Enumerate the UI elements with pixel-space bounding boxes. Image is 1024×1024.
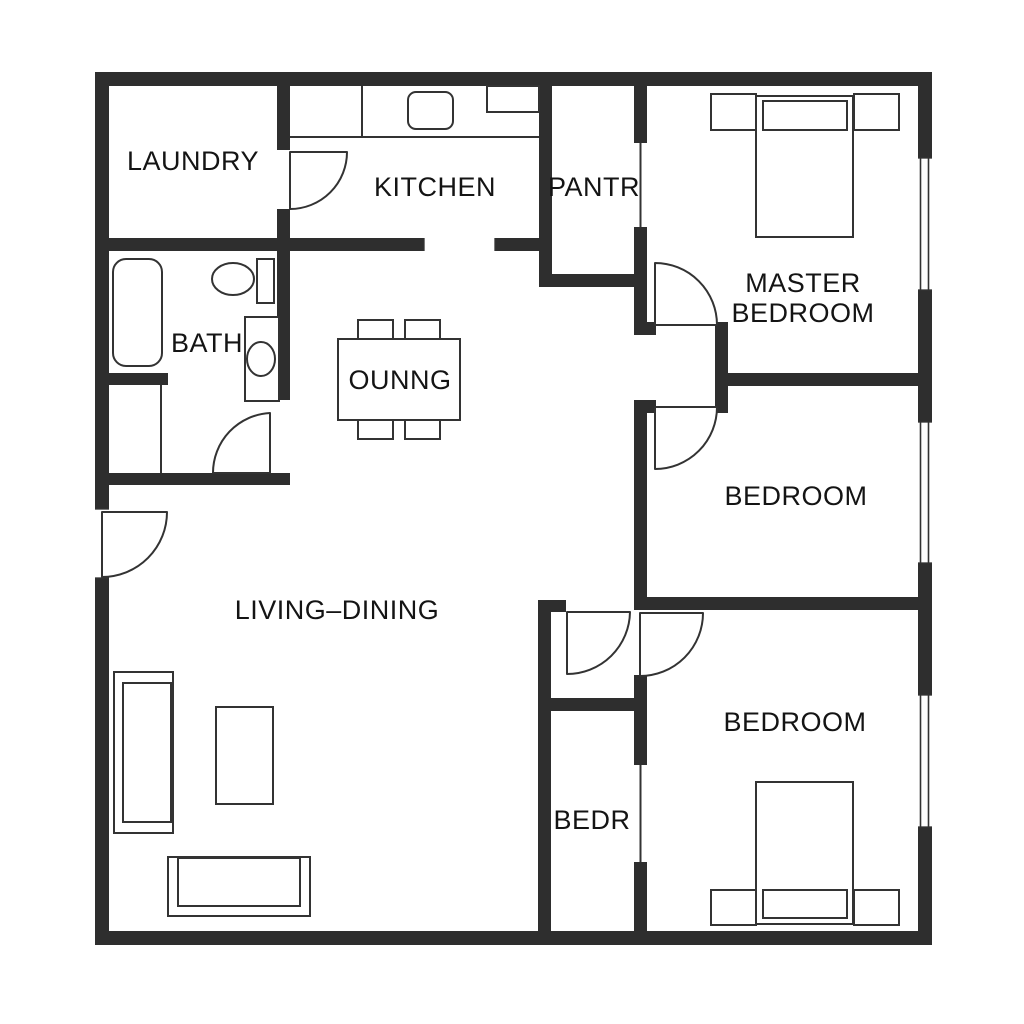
wall-pantry-right-upper bbox=[634, 86, 647, 143]
wall-outer-right-3 bbox=[918, 563, 932, 695]
wall-pantry-bottom bbox=[539, 274, 647, 287]
dining-chair bbox=[405, 320, 440, 339]
label-laundry: LAUNDRY bbox=[127, 146, 259, 176]
wall-outer-right-2 bbox=[918, 290, 932, 422]
wall-laundry-right-upper bbox=[277, 86, 290, 150]
floor-plan-page: LAUNDRY KITCHEN PANTR MASTER BEDROOM BAT… bbox=[0, 0, 1024, 1024]
windows bbox=[918, 158, 932, 827]
label-dining-table: OUNNG bbox=[349, 365, 452, 395]
living-room-furniture bbox=[114, 672, 310, 916]
wall-central-mid bbox=[634, 400, 647, 610]
wall-bedr-top bbox=[538, 698, 647, 711]
wall-bedr-left bbox=[538, 600, 551, 931]
label-bedroom-bottom: BEDROOM bbox=[723, 707, 866, 737]
sofa-horizontal-seat bbox=[178, 858, 300, 906]
wall-bedr-right-lower bbox=[634, 862, 647, 931]
wall-outer-left-lower bbox=[95, 578, 109, 931]
wall-bedr-right-upper bbox=[634, 711, 647, 765]
window-bedroom-bottom bbox=[918, 695, 932, 827]
bath-door-swing bbox=[213, 413, 270, 473]
toilet-bowl bbox=[212, 263, 254, 295]
label-bath: BATH bbox=[171, 328, 243, 358]
master-bed-pillow bbox=[763, 101, 847, 130]
wall-laundry-right-lower bbox=[277, 209, 290, 251]
window-bedroom-middle bbox=[918, 422, 932, 563]
floor-plan-canvas: LAUNDRY KITCHEN PANTR MASTER BEDROOM BAT… bbox=[0, 0, 1024, 1024]
master-bedroom-furniture bbox=[711, 94, 899, 237]
kitchen-cabinet bbox=[487, 86, 539, 112]
label-living-dining: LIVING–DINING bbox=[235, 595, 440, 625]
laundry-door-swing bbox=[290, 152, 347, 209]
bedroom-middle-door-swing bbox=[655, 407, 717, 469]
nightstand bbox=[711, 94, 756, 130]
nightstand bbox=[854, 890, 899, 925]
sofa-vertical-seat bbox=[123, 683, 171, 822]
nightstand bbox=[711, 890, 756, 925]
wall-divider-master-middle bbox=[728, 373, 918, 386]
wall-divider-middle-bottom bbox=[634, 597, 918, 610]
wall-outer-right-4 bbox=[918, 827, 932, 931]
wall-tub-stub bbox=[95, 373, 168, 385]
bedroom-bottom-furniture bbox=[711, 782, 899, 925]
dining-chair bbox=[358, 320, 393, 339]
nightstand bbox=[854, 94, 899, 130]
coffee-table bbox=[216, 707, 273, 804]
bedroom-bottom-door-swing bbox=[640, 613, 703, 676]
label-kitchen: KITCHEN bbox=[374, 172, 496, 202]
kitchen-sink bbox=[408, 92, 453, 129]
kitchen-fixtures bbox=[290, 86, 539, 137]
master-bedroom-door-swing bbox=[655, 263, 717, 325]
label-bedroom-small: BEDR bbox=[553, 805, 630, 835]
bottom-bed-pillow bbox=[763, 890, 847, 918]
wall-outer-top bbox=[95, 72, 932, 86]
dining-chair bbox=[358, 420, 393, 439]
bath-sink bbox=[247, 342, 275, 376]
label-bedroom-middle: BEDROOM bbox=[724, 481, 867, 511]
bathtub bbox=[113, 259, 162, 366]
label-pantry: PANTR bbox=[548, 172, 640, 202]
window-master-bedroom bbox=[918, 158, 932, 290]
wall-outer-right-1 bbox=[918, 86, 932, 158]
label-master-bedroom-line1: MASTER bbox=[745, 268, 861, 298]
label-master-bedroom-line2: BEDROOM bbox=[731, 298, 874, 328]
wall-outer-left-upper bbox=[95, 86, 109, 509]
vestibule-bedr-door-swing bbox=[567, 612, 630, 674]
dining-chair bbox=[405, 420, 440, 439]
wall-kitchen-bottom-left bbox=[95, 238, 424, 251]
wall-bath-bottom bbox=[95, 473, 290, 485]
toilet-tank bbox=[257, 259, 274, 303]
wall-master-door-stub bbox=[715, 322, 728, 413]
front-door-swing bbox=[102, 512, 167, 577]
wall-outer-bottom bbox=[95, 931, 932, 945]
wall-pantry-right-lower bbox=[634, 227, 647, 335]
